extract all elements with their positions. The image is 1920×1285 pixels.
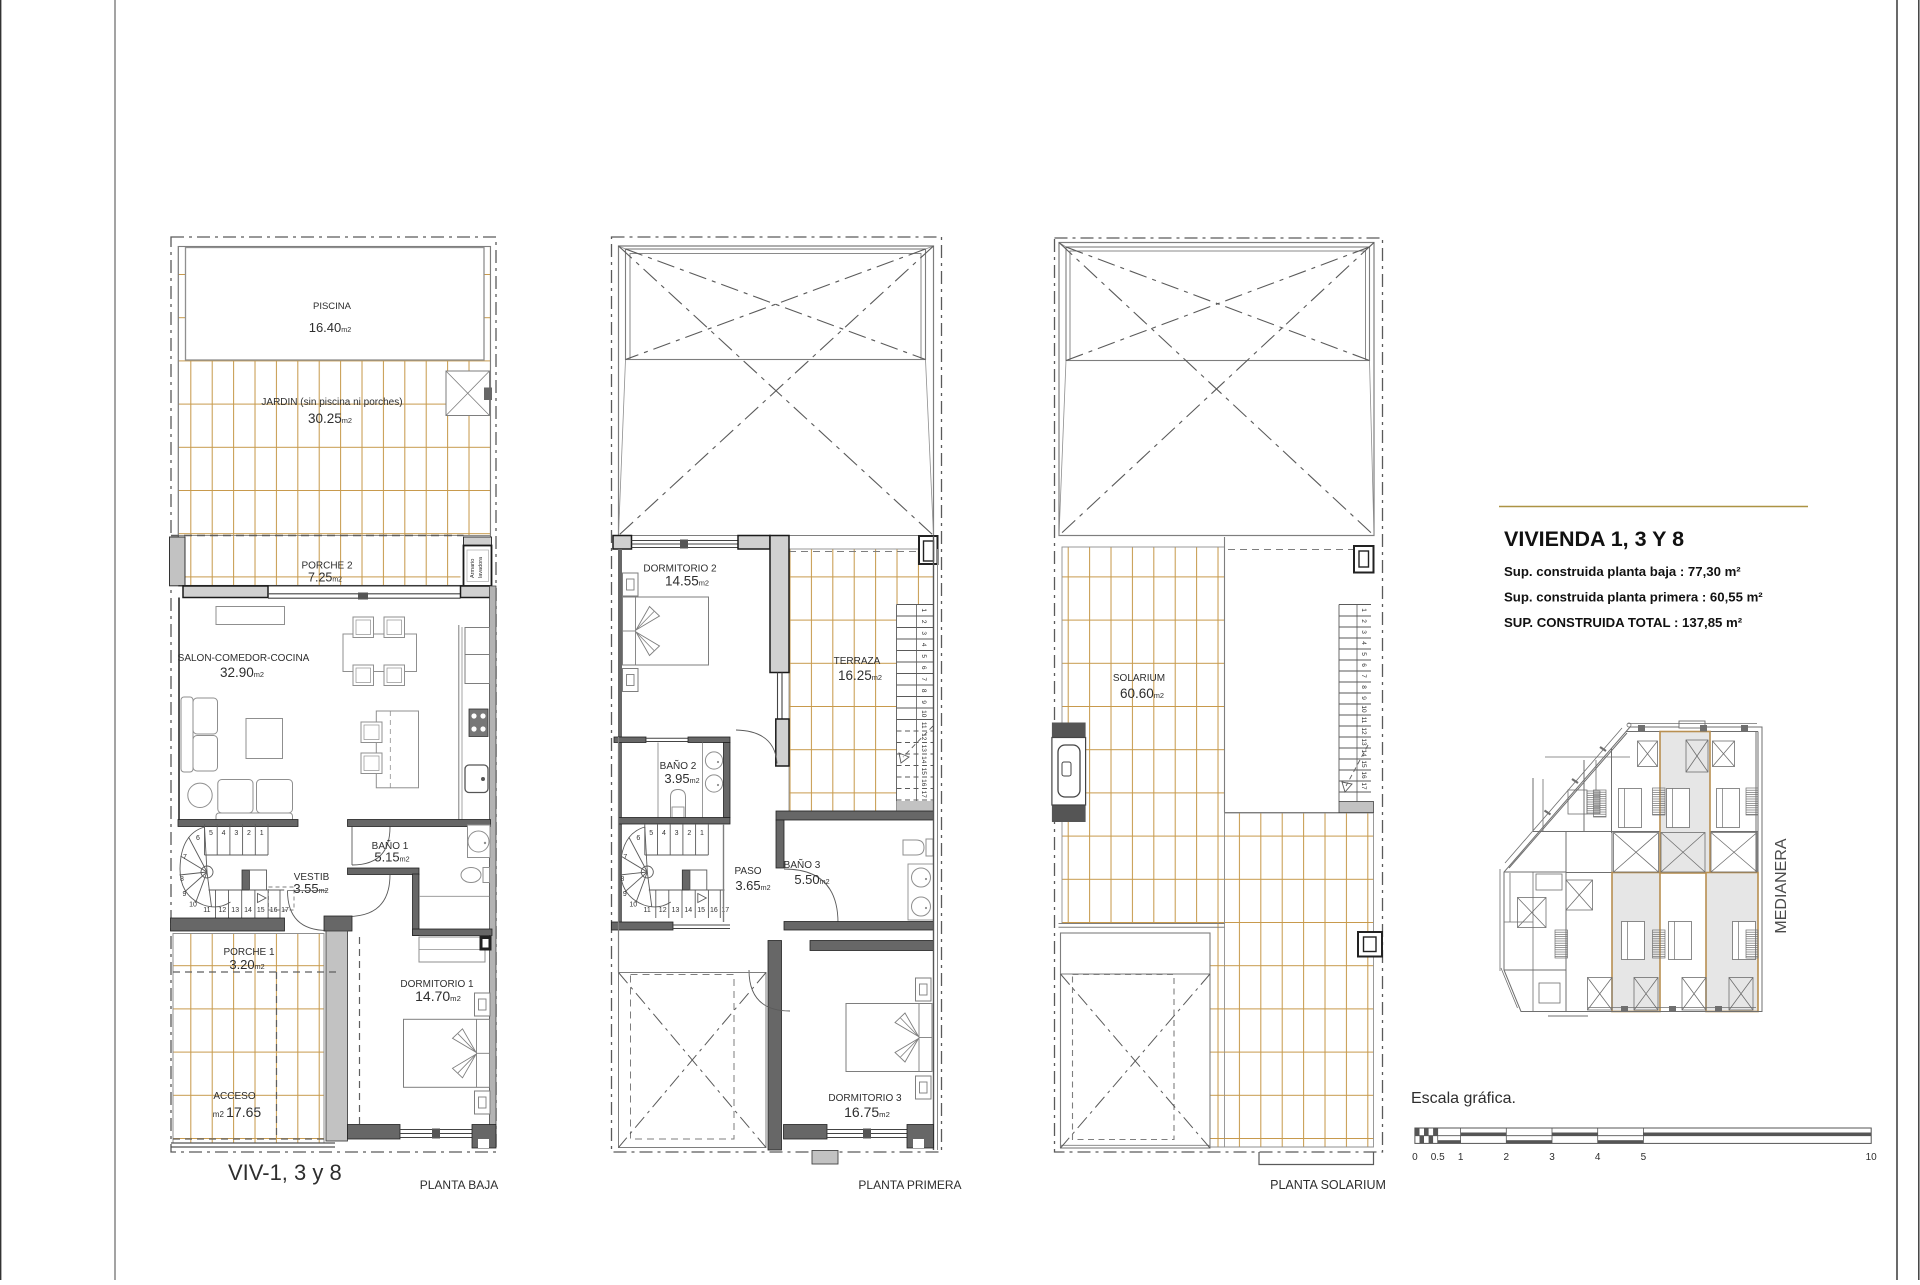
svg-text:12: 12 (1360, 727, 1367, 735)
svg-text:11: 11 (920, 722, 927, 729)
svg-text:10: 10 (1866, 1152, 1878, 1163)
svg-text:3: 3 (1549, 1152, 1555, 1163)
svg-text:TERRAZA: TERRAZA (834, 656, 881, 667)
svg-text:7: 7 (1360, 674, 1367, 678)
svg-text:MEDIANERA: MEDIANERA (1773, 838, 1790, 933)
svg-text:PLANTA PRIMERA: PLANTA PRIMERA (858, 1178, 961, 1192)
svg-text:PLANTA SOLARIUM: PLANTA SOLARIUM (1270, 1178, 1386, 1192)
svg-text:5: 5 (1641, 1152, 1647, 1163)
svg-text:lavadora: lavadora (478, 556, 484, 578)
svg-text:1: 1 (920, 608, 927, 612)
svg-text:6: 6 (1360, 663, 1367, 667)
svg-text:0: 0 (1412, 1152, 1418, 1163)
svg-text:5: 5 (1360, 652, 1367, 656)
svg-text:BAÑO 3: BAÑO 3 (784, 858, 821, 871)
svg-text:SUP. CONSTRUIDA TOTAL : 137,85: SUP. CONSTRUIDA TOTAL : 137,85 m² (1504, 615, 1743, 630)
svg-text:4: 4 (920, 643, 927, 647)
svg-text:10: 10 (1360, 705, 1367, 713)
svg-text:Sup. construida planta primera: Sup. construida planta primera : 60,55 m… (1504, 590, 1763, 605)
svg-text:2: 2 (1360, 619, 1367, 623)
svg-text:DORMITORIO 3: DORMITORIO 3 (828, 1093, 902, 1104)
svg-text:PLANTA BAJA: PLANTA BAJA (420, 1178, 498, 1192)
svg-text:VIV-1, 3 y 8: VIV-1, 3 y 8 (228, 1160, 342, 1185)
svg-text:4: 4 (1595, 1152, 1601, 1163)
svg-text:VIVIENDA 1, 3 Y 8: VIVIENDA 1, 3 Y 8 (1504, 527, 1684, 551)
svg-text:4: 4 (1360, 641, 1367, 645)
svg-text:0.5: 0.5 (1431, 1152, 1445, 1163)
svg-text:Sup. construida planta baja :: Sup. construida planta baja : 77,30 m² (1504, 564, 1741, 579)
svg-text:3: 3 (1360, 630, 1367, 634)
svg-text:17: 17 (920, 791, 927, 799)
svg-text:15: 15 (920, 768, 927, 776)
svg-text:9: 9 (920, 700, 927, 704)
svg-text:2: 2 (920, 620, 927, 624)
svg-text:1: 1 (1360, 608, 1367, 612)
svg-text:13: 13 (920, 745, 927, 753)
svg-text:14: 14 (920, 756, 927, 764)
svg-text:1: 1 (1458, 1152, 1464, 1163)
svg-text:7: 7 (920, 677, 927, 681)
svg-text:ACCESO: ACCESO (213, 1091, 255, 1102)
svg-text:10: 10 (920, 710, 927, 718)
svg-text:13: 13 (1360, 738, 1367, 746)
svg-text:16: 16 (1360, 771, 1367, 779)
svg-text:3: 3 (920, 631, 927, 635)
svg-text:9: 9 (1360, 696, 1367, 700)
svg-text:SOLARIUM: SOLARIUM (1113, 673, 1165, 684)
svg-text:JARDIN (sin piscina ni porches: JARDIN (sin piscina ni porches) (261, 397, 402, 408)
svg-text:Escala gráfica.: Escala gráfica. (1411, 1090, 1516, 1107)
svg-text:8: 8 (1360, 685, 1367, 689)
svg-text:PASO: PASO (734, 866, 761, 877)
svg-text:PISCINA: PISCINA (313, 301, 352, 312)
svg-text:8: 8 (920, 689, 927, 693)
svg-text:16: 16 (920, 779, 927, 787)
svg-text:5: 5 (920, 654, 927, 658)
svg-text:11: 11 (1360, 717, 1367, 724)
svg-text:6: 6 (920, 666, 927, 670)
svg-text:17: 17 (1360, 782, 1367, 790)
svg-text:Armario: Armario (470, 559, 476, 578)
svg-text:SALON-COMEDOR-COCINA: SALON-COMEDOR-COCINA (178, 653, 310, 664)
svg-text:2: 2 (1504, 1152, 1510, 1163)
svg-text:12: 12 (920, 733, 927, 741)
svg-text:15: 15 (1360, 760, 1367, 768)
